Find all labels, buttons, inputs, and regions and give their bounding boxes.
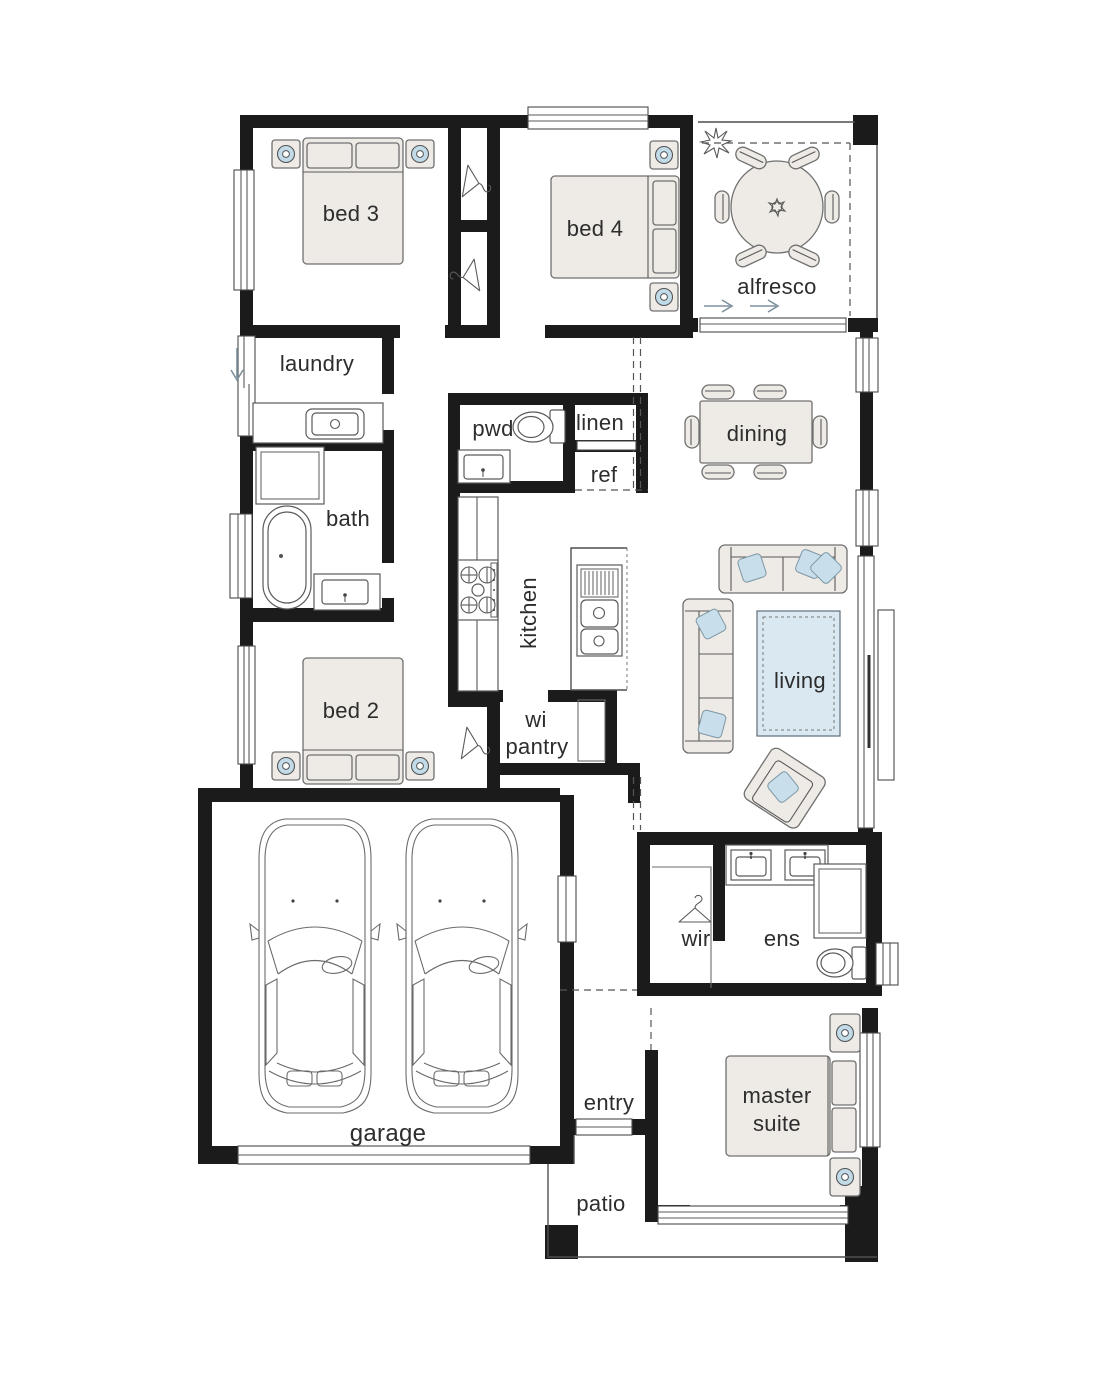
room-bed2: bed 2 — [272, 658, 434, 784]
door-garage-panel — [238, 1146, 530, 1164]
toilet-icon — [513, 410, 565, 443]
room-wi-pantry: wi pantry — [506, 700, 605, 761]
door-alfresco-sliding — [700, 318, 846, 332]
armchair-icon — [742, 746, 828, 831]
bedside-table-icon — [406, 140, 434, 168]
window-master-bottom — [658, 1206, 848, 1224]
bedside-table-icon — [650, 141, 678, 169]
car-icon — [397, 819, 527, 1113]
chair-icon — [734, 145, 769, 171]
room-label-alfresco: alfresco — [737, 274, 816, 299]
window-ens — [876, 943, 898, 985]
chair-icon — [825, 191, 839, 223]
chair-icon — [702, 385, 734, 399]
room-label-kitchen: kitchen — [516, 577, 541, 649]
hanger-icon — [679, 895, 711, 922]
room-entry: entry — [584, 1090, 634, 1115]
room-kitchen: kitchen — [458, 497, 627, 691]
window-bed4-top — [528, 107, 648, 129]
bedside-table-icon — [272, 140, 300, 168]
bedside-table-icon — [650, 283, 678, 311]
window-bed2 — [238, 646, 255, 764]
room-label-wir: wir — [680, 926, 710, 951]
chair-icon — [754, 465, 786, 479]
vanity-sink-icon — [731, 850, 771, 880]
room-alfresco: alfresco — [701, 128, 839, 312]
room-ens: ens — [726, 845, 866, 979]
room-bed3: bed 3 — [272, 138, 434, 264]
toilet-icon — [817, 947, 866, 979]
room-label-master-line1: master — [742, 1083, 811, 1108]
sofa-icon — [719, 545, 847, 593]
room-label-linen: linen — [576, 410, 624, 435]
sofa-icon — [683, 599, 733, 753]
pantry-shelf — [578, 700, 605, 761]
room-label-ref: ref — [591, 462, 618, 487]
room-master-suite: master suite — [726, 1014, 860, 1196]
cooktop-icon — [458, 560, 498, 620]
room-linen: linen — [576, 410, 636, 450]
shower-icon — [256, 447, 324, 504]
car-icon — [250, 819, 380, 1113]
bedside-table-icon — [406, 752, 434, 780]
room-label-wi-pantry-line2: pantry — [506, 734, 569, 759]
bedside-table-icon — [830, 1158, 860, 1196]
island-bench — [571, 548, 627, 690]
chair-icon — [734, 243, 769, 269]
chair-icon — [685, 416, 699, 448]
window-dining-lower — [856, 490, 878, 546]
shower-icon — [814, 864, 866, 938]
window-dining-upper — [856, 338, 878, 392]
room-label-living: living — [774, 668, 826, 693]
room-label-dining: dining — [727, 421, 788, 446]
room-label-entry: entry — [584, 1090, 634, 1115]
door-living-stacker — [858, 556, 894, 828]
room-label-bed4: bed 4 — [567, 216, 624, 241]
room-garage: garage — [250, 819, 527, 1147]
window-bed3 — [234, 170, 254, 290]
room-label-wi-pantry-line1: wi — [524, 707, 546, 732]
room-bath: bath — [256, 447, 380, 610]
vanity-sink-icon — [458, 450, 510, 483]
room-patio: patio — [576, 1191, 625, 1216]
room-dining: dining — [685, 385, 827, 479]
room-label-garage: garage — [350, 1120, 427, 1147]
room-label-laundry: laundry — [280, 351, 354, 376]
window-bath — [230, 514, 252, 598]
room-ref: ref — [591, 462, 618, 487]
bedside-table-icon — [830, 1014, 860, 1052]
chair-icon — [813, 416, 827, 448]
room-label-bath: bath — [326, 506, 370, 531]
room-label-pwd: pwd — [472, 416, 513, 441]
vanity-sink-icon — [314, 574, 380, 610]
bedside-table-icon — [272, 752, 300, 780]
chair-icon — [787, 243, 822, 269]
room-label-ens: ens — [764, 926, 800, 951]
chair-icon — [702, 465, 734, 479]
window-master-right — [860, 1033, 880, 1147]
laundry-sink-icon — [306, 409, 364, 439]
room-bed4: bed 4 — [551, 141, 679, 311]
room-pwd: pwd — [458, 410, 565, 483]
room-label-bed2: bed 2 — [323, 698, 380, 723]
linen-shelf — [577, 441, 636, 450]
room-label-bed3: bed 3 — [323, 201, 380, 226]
island-sink-icon — [577, 565, 622, 656]
room-label-patio: patio — [576, 1191, 625, 1216]
sliding-direction-arrows — [704, 300, 778, 312]
room-label-master-line2: suite — [753, 1111, 801, 1136]
floor-plan-page: bed 3 bed 4 — [0, 0, 1100, 1399]
room-wir: wir — [652, 867, 711, 988]
door-garage-internal — [558, 876, 576, 942]
door-front-entry — [576, 1119, 632, 1135]
outdoor-table-icon — [731, 161, 823, 253]
chair-icon — [754, 385, 786, 399]
bathtub-icon — [263, 506, 311, 609]
room-living: living — [683, 545, 847, 831]
floor-plan-svg: bed 3 bed 4 — [0, 0, 1100, 1399]
chair-icon — [715, 191, 729, 223]
chair-icon — [787, 145, 822, 171]
